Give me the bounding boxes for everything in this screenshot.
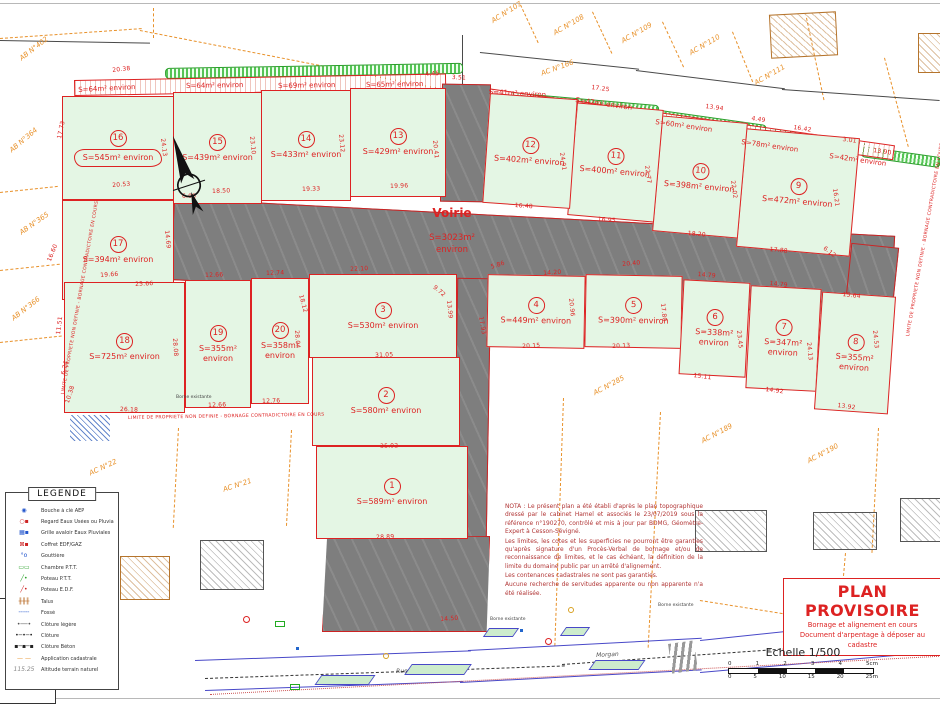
utility-marker (520, 629, 523, 632)
provisional-stamp: PLAN PROVISOIRE Bornage et alignement en… (783, 578, 940, 656)
measurement: 19.96 (390, 182, 408, 190)
parcel-label: AB N°366 (10, 295, 42, 322)
measurement: 20.15 (522, 342, 541, 350)
building (200, 540, 264, 590)
talus-hatch (70, 415, 110, 441)
measurement: 14.50 (440, 615, 459, 623)
street-name-label: Rue (396, 668, 408, 675)
parcel-label: AC N°109 (620, 21, 653, 45)
utility-marker (545, 638, 552, 645)
measurement: 4.45 (425, 70, 440, 78)
lot-area: S=725m² environ (87, 352, 162, 362)
lot-number: 18 (116, 333, 133, 350)
lot-number: 12 (521, 136, 539, 154)
lot-number: 6 (706, 309, 724, 327)
legend-label: Altitude terrain naturel (41, 667, 98, 673)
lot-number: 20 (272, 322, 289, 339)
traffic-island (560, 627, 590, 636)
tick: 4 (838, 661, 842, 667)
scale-bar: Echelle 1/500 0 1 2 3 4 5cm 0 5 10 15 20… (728, 646, 878, 681)
lot-number: 1 (384, 478, 401, 495)
building (918, 33, 940, 73)
lot-1: 1 S=589m² environ (316, 446, 468, 539)
grille-avaloir-icon: ▦▪ (10, 530, 38, 536)
voirie-environ-label: environ (412, 245, 492, 255)
lot-number: 14 (298, 131, 315, 148)
tick: 5cm (866, 661, 878, 667)
measurement: 12.66 (208, 401, 226, 409)
lot-area: S=355m² environ (818, 350, 891, 375)
tick: 20 (837, 674, 844, 680)
street-name-label: Morgan (596, 651, 619, 659)
legend-item: ◉ Bouche à clé AEP (6, 505, 118, 516)
chambre-ptt-icon: ▭▭ (10, 565, 38, 571)
curb-line (460, 669, 702, 683)
legend-item: ▭▭ Chambre P.T.T. (6, 562, 118, 573)
legend-label: Bouche à clé AEP (41, 508, 84, 514)
measurement: 28.89 (376, 533, 394, 541)
legend-item: 115.25 Altitude terrain naturel (6, 664, 118, 675)
lot-number: 13 (390, 128, 407, 145)
measurement: 14.79 (697, 271, 716, 280)
voirie-label: Voirie (416, 206, 488, 220)
utility-marker (568, 607, 574, 613)
legend-label: Poteau P.T.T. (41, 576, 72, 582)
stamp-title: PLAN PROVISOIRE (786, 582, 939, 620)
lot-number: 8 (847, 333, 865, 351)
cadastre-line (153, 8, 154, 38)
strip-lot-label: S=64m² environ (186, 81, 243, 90)
traffic-island (404, 664, 472, 675)
boundary-note: LIMITE DE PROPRIETE NON DEFINIE - BORNAG… (906, 143, 940, 337)
legend-item: — — Application cadastrale (6, 653, 118, 664)
parcel-label: AC N°190 (806, 442, 840, 465)
legend-box: LEGENDE ◉ Bouche à clé AEP ○▪ Regard Eau… (5, 492, 119, 690)
measurement: 12.76 (262, 397, 280, 405)
borne-label: Borne existante (176, 396, 212, 401)
borne-label: Borne existante (658, 604, 694, 609)
application-cadastrale-icon: — — (10, 656, 38, 662)
cadastre-line (286, 430, 292, 526)
legend-item: ╱• Poteau P.T.T. (6, 573, 118, 584)
voirie-area (322, 536, 490, 632)
utility-marker (290, 684, 300, 690)
crosswalk (668, 640, 698, 673)
altitude-terrain-icon: 115.25 (10, 667, 38, 673)
survey-plan: AB N°402 AB N°364 AB N°365 AB N°366 AC N… (0, 0, 940, 705)
tick: 15 (808, 674, 815, 680)
utility-marker (275, 621, 285, 627)
measurement: 14.92 (765, 386, 784, 395)
legend-label: Gouttière (41, 553, 65, 559)
utility-marker (296, 647, 299, 650)
parcel-label: AB N°364 (8, 126, 39, 154)
measurement: 31.05 (375, 351, 393, 359)
tick: 25m (866, 674, 878, 680)
legend-label: Chambre P.T.T. (41, 565, 77, 571)
cadastre-line (520, 5, 539, 43)
cadastre-line (0, 28, 142, 39)
legend-item: ▪─▪─▪ Clôture Béton (6, 642, 118, 653)
strip-lot-label: S=69m² environ (278, 81, 335, 90)
parcel-label: AC N°108 (552, 13, 585, 37)
tick: 0 (728, 661, 732, 667)
lot-number: 9 (789, 177, 807, 195)
lot-6: 6 S=338m² environ (679, 279, 751, 377)
tick: 1 (756, 661, 760, 667)
scale-label: Echelle 1/500 (728, 646, 878, 659)
measurement: 22.10 (350, 265, 369, 273)
parcel-label: AB N°365 (18, 211, 50, 237)
measurement: 26.18 (120, 406, 138, 414)
lot-number: 7 (775, 319, 793, 337)
nota-paragraph: Aucune recherche de servitudes apparente… (505, 581, 703, 598)
tick: 0 (728, 674, 732, 680)
lot-area: S=530m² environ (346, 321, 421, 331)
tick: 2 (783, 661, 787, 667)
measurement: 18.20 (687, 230, 706, 239)
legend-item: •─•─• Clôture (6, 630, 118, 641)
measurement: 15.11 (693, 372, 712, 381)
boundary-note: LIMITE DE PROPRIETE NON DEFINIE - BORNAG… (128, 413, 325, 421)
measurement: 25.66 (135, 280, 154, 288)
lot-number: 4 (527, 297, 544, 314)
talus-icon: ╫╫╫ (10, 599, 38, 605)
stamp-line1: Bornage et alignement en cours (786, 620, 939, 630)
legend-label: Poteau E.D.F. (41, 587, 74, 593)
cadastre-line (592, 12, 612, 54)
parcel-label: AC N°110 (688, 33, 721, 57)
legend-label: Clôture légère (41, 622, 76, 628)
measurement: 11.51 (55, 316, 64, 335)
legend-label: Fossé (41, 610, 55, 616)
bouche-a-cle-aep-icon: ◉ (10, 508, 38, 514)
street-centerline (205, 665, 565, 679)
curb-line (468, 638, 702, 651)
cloture-beton-icon: ▪─▪─▪ (10, 644, 38, 650)
lot-19: 19 S=355m² environ (185, 280, 251, 408)
cloture-icon: •─•─• (10, 633, 38, 639)
legend-label: Grille avaloir Eaux Pluviales (41, 530, 110, 536)
legend-label: Clôture Béton (41, 644, 75, 650)
legend-label: Talus (41, 599, 53, 605)
boundary-line (782, 89, 940, 101)
legend-title: LEGENDE (28, 487, 96, 501)
lot-number: 10 (691, 162, 709, 180)
lot-area: S=545m² environ (81, 153, 156, 163)
lot-number: 11 (607, 147, 625, 165)
legend-item: ╫╫╫ Talus (6, 596, 118, 607)
legend-label: Coffret EDF/GAZ (41, 542, 82, 548)
scale-ticks-m: 0 5 10 15 20 25m (728, 674, 878, 681)
building (900, 498, 940, 542)
voirie-area-label: S=3023m² (412, 233, 492, 243)
tick: 3 (811, 661, 815, 667)
parcel-label: AC N°22 (88, 458, 118, 478)
traffic-island (588, 660, 645, 670)
measurement: 12.66 (205, 271, 223, 279)
legend-label: Regard Eaux Usées ou Pluviales (41, 519, 114, 525)
lot-number: 16 (110, 130, 127, 147)
cadastre-line (173, 428, 179, 528)
cadastre-line (0, 186, 58, 193)
traffic-island (483, 628, 519, 637)
measurement: 16.48 (515, 202, 534, 210)
legend-item: ╱• Poteau E.D.F. (6, 585, 118, 596)
measurement: 16.95 (598, 216, 617, 224)
parcel-label: AC N°285 (592, 374, 626, 397)
measurement: 14.20 (543, 269, 562, 277)
building (769, 11, 838, 58)
tick: 5 (753, 674, 757, 680)
measurement: 19.66 (100, 271, 119, 279)
legend-item: °o Gouttière (6, 551, 118, 562)
measurement: 3.51 (452, 74, 467, 82)
lot-area: S=449m² environ (498, 315, 573, 326)
measurement: 20.38 (112, 65, 131, 74)
lot-2: 2 S=580m² environ (312, 357, 460, 446)
lot-number: 19 (210, 325, 227, 342)
sheet-top-line (0, 3, 940, 4)
poteau-ptt-icon: ╱• (10, 576, 38, 582)
coffret-edf-gaz-icon: ⊠▪ (10, 542, 38, 548)
legend-item: ⊠▪ Coffret EDF/GAZ (6, 539, 118, 550)
poteau-edf-icon: ╱• (10, 587, 38, 593)
lot-area: S=355m² environ (186, 344, 250, 364)
measurement: 13.94 (705, 103, 724, 112)
legend-label: Application cadastrale (41, 656, 97, 662)
lot-area: S=394m² environ (81, 255, 156, 265)
lot-area: S=429m² environ (361, 147, 436, 157)
borne-label: Borne existante (490, 618, 526, 623)
legend-item: ▦▪ Grille avaloir Eaux Pluviales (6, 528, 118, 539)
measurement: 12.74 (266, 269, 284, 277)
cadastre-line (0, 336, 62, 343)
measurement: 35.02 (380, 442, 398, 450)
scale-ticks-cm: 0 1 2 3 4 5cm (728, 661, 878, 668)
lot-10: 10 S=398m² environ (652, 115, 748, 238)
lot-number: 17 (110, 236, 127, 253)
fosse-icon: ╌╌╌ (10, 610, 38, 616)
lot-area: S=580m² environ (349, 406, 424, 416)
measurement: 19.33 (302, 185, 320, 193)
legend-item: ○▪ Regard Eaux Usées ou Pluviales (6, 516, 118, 527)
boundary-line (0, 40, 150, 44)
legend-label: Clôture (41, 633, 59, 639)
lot-area: S=400m² environ (577, 164, 652, 180)
lot-area: S=433m² environ (269, 150, 344, 160)
lot-number: 3 (375, 302, 392, 319)
parcel-label: AC N°21 (222, 477, 253, 494)
strip-lot-label: S=65m² environ (366, 80, 423, 89)
utility-marker (243, 616, 250, 623)
cadastre-line (0, 264, 60, 271)
parcel-label: AC N°189 (700, 422, 734, 445)
lot-area: S=398m² environ (662, 178, 737, 194)
lot-8: 8 S=355m² environ (814, 292, 896, 415)
nota-paragraph: Les limites, les cotes et les superficie… (505, 538, 703, 572)
building (695, 510, 767, 552)
lot-number: 15 (209, 134, 226, 151)
nota-block: NOTA : Le présent plan a été établi d'ap… (505, 503, 703, 599)
cadastre-line (884, 58, 909, 147)
measurement: 20.53 (112, 181, 131, 189)
lot-12: 12 S=402m² environ (482, 93, 577, 209)
cadastre-line (662, 22, 684, 68)
measurement: 17.25 (591, 84, 610, 93)
traffic-island (314, 675, 375, 685)
utility-marker (383, 653, 389, 659)
measurement: 20.13 (612, 342, 631, 350)
parcel-label: AB N°402 (18, 35, 50, 62)
lot-area: S=589m² environ (355, 497, 430, 507)
lot-11: 11 S=400m² environ (567, 102, 664, 222)
tick: 10 (779, 674, 786, 680)
measurement: 16.60 (46, 243, 59, 262)
cloture-legere-icon: •──• (10, 622, 38, 628)
lot-area: S=402m² environ (492, 153, 567, 168)
lot-7: 7 S=347m² environ (745, 285, 821, 392)
nota-paragraph: Les contenances cadastrales ne sont pas … (505, 572, 703, 580)
building (120, 556, 170, 600)
building (813, 512, 877, 550)
legend-item: •──• Clôture légère (6, 619, 118, 630)
measurement: 28.04 (293, 330, 301, 349)
gouttiere-icon: °o (10, 553, 38, 559)
legend-item: ╌╌╌ Fossé (6, 608, 118, 619)
parcel-label: AC N°111 (753, 63, 786, 87)
curb-line (195, 650, 471, 661)
lot-number: 5 (625, 297, 642, 314)
nota-paragraph: NOTA : Le présent plan a été établi d'ap… (505, 503, 703, 537)
regard-eaux-icon: ○▪ (10, 519, 38, 525)
measurement: 28.08 (171, 338, 179, 357)
sheet-bottom-line (0, 698, 940, 699)
lot-number: 2 (378, 387, 395, 404)
lot-area: S=472m² environ (760, 194, 835, 210)
lot-5: 5 S=390m² environ (584, 274, 682, 349)
cadastre-line (732, 32, 753, 82)
